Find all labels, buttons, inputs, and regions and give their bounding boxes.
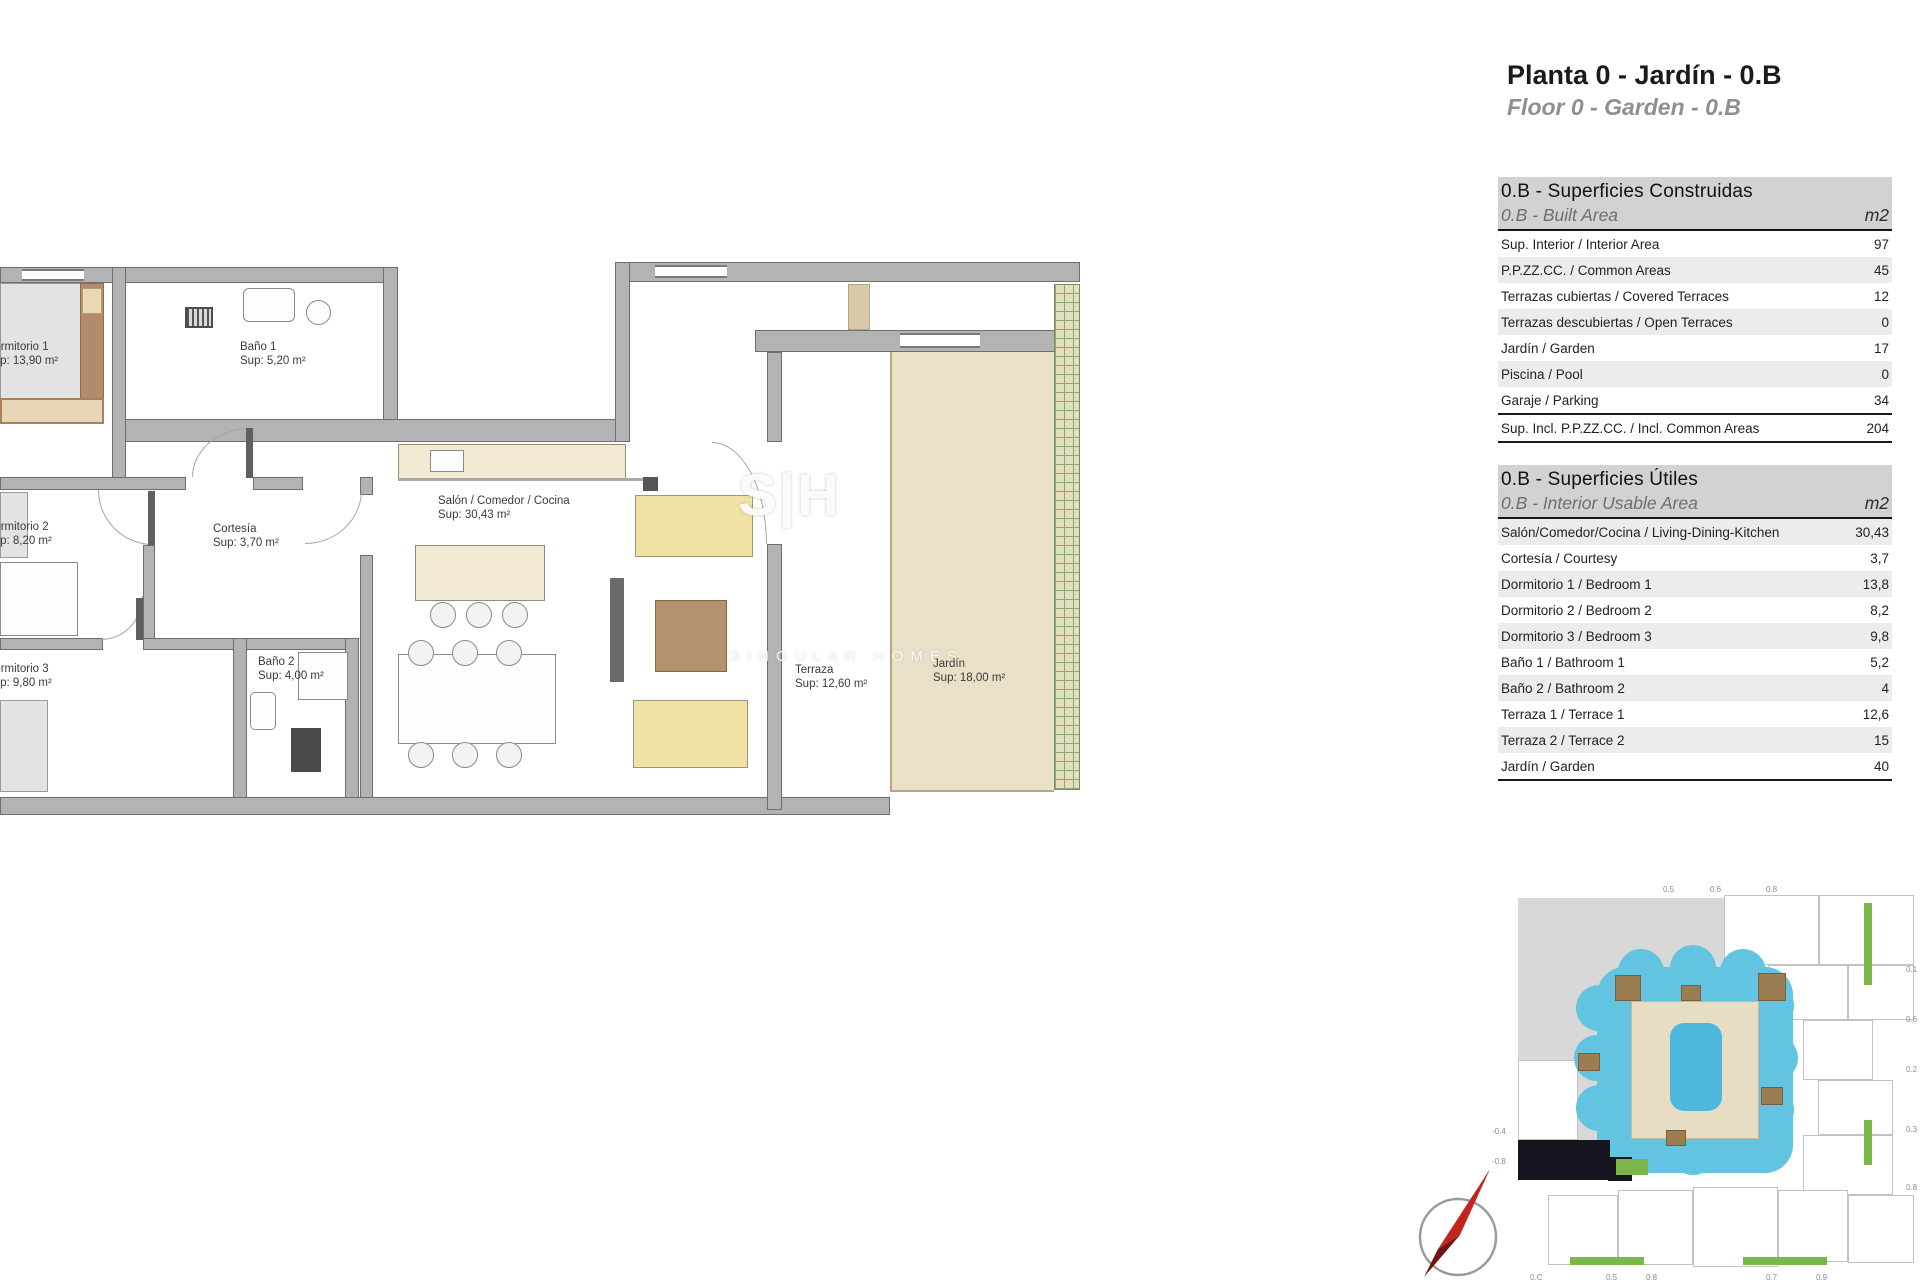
table-row: Terraza 1 / Terrace 112,6 xyxy=(1498,701,1892,727)
bed xyxy=(0,562,78,636)
wall xyxy=(767,352,782,442)
toilet xyxy=(250,692,276,730)
site-label: 0.6 xyxy=(1906,1015,1917,1024)
room-name: Baño 2 xyxy=(258,656,294,668)
pillow xyxy=(82,288,102,314)
site-unit xyxy=(1778,1190,1848,1262)
row-value: 5,2 xyxy=(1870,655,1889,670)
row-value: 30,43 xyxy=(1855,525,1889,540)
page-title: Planta 0 - Jardín - 0.B xyxy=(1507,60,1782,91)
table-row: Salón/Comedor/Cocina / Living-Dining-Kit… xyxy=(1498,519,1892,545)
table-row: Dormitorio 3 / Bedroom 39,8 xyxy=(1498,623,1892,649)
wall xyxy=(112,267,126,480)
row-value: 3,7 xyxy=(1870,551,1889,566)
row-value: 40 xyxy=(1874,759,1889,774)
wall xyxy=(0,797,890,815)
stool xyxy=(430,602,456,628)
table-row: Baño 1 / Bathroom 15,2 xyxy=(1498,649,1892,675)
row-value: 12 xyxy=(1874,289,1889,304)
sofa xyxy=(633,700,748,768)
wall xyxy=(360,555,373,810)
row-value: 4 xyxy=(1881,681,1889,696)
table-title-en: 0.B - Interior Usable Area xyxy=(1501,493,1698,514)
row-value: 12,6 xyxy=(1863,707,1889,722)
landscape-strip xyxy=(1864,1120,1872,1165)
deck-structure xyxy=(1758,973,1786,1001)
row-value: 17 xyxy=(1874,341,1889,356)
table-row: Baño 2 / Bathroom 24 xyxy=(1498,675,1892,701)
room-label-banio1: Baño 1 Sup: 5,20 m² xyxy=(240,340,306,368)
bed-foot-bench xyxy=(0,398,104,424)
landscape-strip xyxy=(1570,1257,1644,1265)
wall xyxy=(253,477,303,490)
door-leaf xyxy=(148,491,155,545)
built-area-table: 0.B - Superficies Construidas 0.B - Buil… xyxy=(1498,177,1892,443)
chair xyxy=(452,742,478,768)
row-label: Baño 1 / Bathroom 1 xyxy=(1501,655,1625,670)
row-value: 0 xyxy=(1881,315,1889,330)
compass xyxy=(1408,1165,1523,1280)
site-unit xyxy=(1618,1190,1693,1265)
table-unit: m2 xyxy=(1865,493,1889,514)
watermark-logo: S|H xyxy=(738,462,841,529)
wall xyxy=(112,419,626,442)
room-label-jardin: Jardín Sup: 18,00 m² xyxy=(933,657,1005,685)
row-label: Dormitorio 2 / Bedroom 2 xyxy=(1501,603,1652,618)
wall xyxy=(233,638,247,810)
room-label-dormitorio2: Dormitorio 2 Sup: 8,20 m² xyxy=(0,520,52,548)
floor-plan: S|H SINGULAR HOMES Dormitorio 1 Sup: 13 xyxy=(0,0,1100,840)
row-label: Sup. Interior / Interior Area xyxy=(1501,237,1659,252)
room-name: Baño 1 xyxy=(240,341,276,353)
wall xyxy=(143,638,359,650)
chair xyxy=(408,640,434,666)
table-row: Jardín / Garden40 xyxy=(1498,753,1892,781)
wall xyxy=(0,638,103,650)
room-area: Sup: 13,90 m² xyxy=(0,355,58,367)
site-label: -0.4 xyxy=(1492,1127,1506,1136)
landscape-strip xyxy=(1743,1257,1827,1265)
garden-hedge-hatch xyxy=(1054,284,1080,790)
window xyxy=(900,333,980,348)
chair xyxy=(496,640,522,666)
room-name: Salón / Comedor / Cocina xyxy=(438,495,570,507)
site-label: 0.C xyxy=(1530,1273,1542,1280)
row-value: 15 xyxy=(1874,733,1889,748)
page-subtitle: Floor 0 - Garden - 0.B xyxy=(1507,94,1782,121)
door-arc xyxy=(98,490,153,545)
site-label: 0.3 xyxy=(1906,1125,1917,1134)
site-label: 0.8 xyxy=(1646,1273,1657,1280)
key-site-plan: 0.5 0.6 0.8 0.1 0.6 0.2 0.3 0.8 -0.4 -0.… xyxy=(1518,895,1918,1280)
door-arc xyxy=(305,490,362,544)
table-row: Cortesía / Courtesy3,7 xyxy=(1498,545,1892,571)
room-label-dormitorio1: Dormitorio 1 Sup: 13,90 m² xyxy=(0,340,58,368)
garden-area xyxy=(890,352,1054,792)
row-label: Salón/Comedor/Cocina / Living-Dining-Kit… xyxy=(1501,525,1779,540)
window xyxy=(22,269,84,281)
coffee-table xyxy=(655,600,727,672)
usable-area-table: 0.B - Superficies Útiles 0.B - Interior … xyxy=(1498,465,1892,781)
row-label: Jardín / Garden xyxy=(1501,341,1595,356)
table-title-en: 0.B - Built Area xyxy=(1501,205,1618,226)
site-label: 0.8 xyxy=(1766,885,1777,894)
table-title-es: 0.B - Superficies Construidas xyxy=(1501,181,1889,203)
site-label: 0.7 xyxy=(1766,1273,1777,1280)
room-area: Sup: 18,00 m² xyxy=(933,672,1005,684)
room-label-salon: Salón / Comedor / Cocina Sup: 30,43 m² xyxy=(438,494,570,522)
floorplan-sheet: { "header": { "title": "Planta 0 - Jardí… xyxy=(0,0,1920,1280)
wall xyxy=(143,545,155,645)
row-label: Terrazas cubiertas / Covered Terraces xyxy=(1501,289,1729,304)
pillar xyxy=(848,284,870,330)
washbasin-unit xyxy=(291,728,321,772)
site-label: 0.8 xyxy=(1906,1183,1917,1192)
room-area: Sup: 30,43 m² xyxy=(438,509,510,521)
table-row: Terraza 2 / Terrace 215 xyxy=(1498,727,1892,753)
room-area: Sup: 12,60 m² xyxy=(795,678,867,690)
chair xyxy=(452,640,478,666)
row-label: Piscina / Pool xyxy=(1501,367,1583,382)
row-value: 13,8 xyxy=(1863,577,1889,592)
site-unit xyxy=(1693,1187,1778,1267)
row-label: Garaje / Parking xyxy=(1501,393,1599,408)
row-label: Terraza 2 / Terrace 2 xyxy=(1501,733,1625,748)
toilet xyxy=(243,288,295,322)
sheet-title-block: Planta 0 - Jardín - 0.B Floor 0 - Garden… xyxy=(1507,60,1782,121)
pool-scallop xyxy=(1576,1085,1622,1131)
table-title-es: 0.B - Superficies Útiles xyxy=(1501,469,1889,491)
door-leaf xyxy=(136,598,143,640)
room-label-banio2: Baño 2 Sup: 4,00 m² xyxy=(258,655,324,683)
site-unit xyxy=(1803,1020,1873,1080)
site-unit xyxy=(1548,1195,1618,1265)
wardrobe xyxy=(0,700,48,792)
tv-sideboard xyxy=(610,578,624,682)
table-row: Garaje / Parking34 xyxy=(1498,387,1892,413)
room-area: Sup: 4,00 m² xyxy=(258,670,324,682)
row-label: Jardín / Garden xyxy=(1501,759,1595,774)
wall xyxy=(767,544,782,810)
deck-structure xyxy=(1578,1053,1600,1071)
room-name: Dormitorio 1 xyxy=(0,341,49,353)
room-name: Terraza xyxy=(795,664,833,676)
site-unit xyxy=(1818,1080,1893,1135)
row-value: 204 xyxy=(1866,421,1889,436)
stool xyxy=(466,602,492,628)
landscape-strip xyxy=(1864,903,1872,985)
table-header: 0.B - Superficies Útiles 0.B - Interior … xyxy=(1498,465,1892,519)
table-row: Dormitorio 2 / Bedroom 28,2 xyxy=(1498,597,1892,623)
room-name: Dormitorio 2 xyxy=(0,521,49,533)
room-area: Sup: 5,20 m² xyxy=(240,355,306,367)
deck-structure xyxy=(1761,1087,1783,1105)
room-area: Sup: 8,20 m² xyxy=(0,535,52,547)
row-value: 9,8 xyxy=(1870,629,1889,644)
row-label: Sup. Incl. P.P.ZZ.CC. / Incl. Common Are… xyxy=(1501,421,1759,436)
wall xyxy=(0,477,186,490)
column-post xyxy=(643,477,658,491)
row-label: P.P.ZZ.CC. / Common Areas xyxy=(1501,263,1671,278)
row-label: Baño 2 / Bathroom 2 xyxy=(1501,681,1625,696)
row-label: Dormitorio 1 / Bedroom 1 xyxy=(1501,577,1652,592)
room-name: Cortesía xyxy=(213,523,256,535)
room-label-dormitorio3: Dormitorio 3 Sup: 9,80 m² xyxy=(0,662,52,690)
site-label: 0.1 xyxy=(1906,965,1917,974)
table-row: Sup. Interior / Interior Area97 xyxy=(1498,231,1892,257)
room-area: Sup: 3,70 m² xyxy=(213,537,279,549)
row-value: 0 xyxy=(1881,367,1889,382)
deck-structure xyxy=(1615,975,1641,1001)
row-value: 97 xyxy=(1874,237,1889,252)
kitchen-sink xyxy=(430,450,464,472)
kitchen-island xyxy=(415,545,545,601)
room-name: Dormitorio 3 xyxy=(0,663,49,675)
site-label: 0.6 xyxy=(1710,885,1721,894)
row-value: 34 xyxy=(1874,393,1889,408)
site-unit xyxy=(1518,1060,1578,1140)
site-label: 0.5 xyxy=(1606,1273,1617,1280)
landscape-strip xyxy=(1616,1159,1648,1175)
room-name: Jardín xyxy=(933,658,965,670)
dining-table xyxy=(398,654,556,744)
chair xyxy=(496,742,522,768)
table-row: P.P.ZZ.CC. / Common Areas45 xyxy=(1498,257,1892,283)
table-row: Piscina / Pool0 xyxy=(1498,361,1892,387)
row-label: Dormitorio 3 / Bedroom 3 xyxy=(1501,629,1652,644)
table-header: 0.B - Superficies Construidas 0.B - Buil… xyxy=(1498,177,1892,231)
row-label: Cortesía / Courtesy xyxy=(1501,551,1617,566)
deck-structure xyxy=(1681,985,1701,1001)
counter-edge xyxy=(398,478,646,481)
table-unit: m2 xyxy=(1865,205,1889,226)
deck-structure xyxy=(1666,1130,1686,1146)
site-label: 0.5 xyxy=(1663,885,1674,894)
door-leaf xyxy=(246,428,253,478)
chair xyxy=(408,742,434,768)
window xyxy=(655,265,727,278)
table-row: Terrazas descubiertas / Open Terraces0 xyxy=(1498,309,1892,335)
central-pool xyxy=(1670,1023,1722,1111)
table-row: Jardín / Garden17 xyxy=(1498,335,1892,361)
site-unit xyxy=(1848,965,1914,1020)
row-label: Terrazas descubiertas / Open Terraces xyxy=(1501,315,1733,330)
wall xyxy=(615,262,630,442)
table-row: Terrazas cubiertas / Covered Terraces12 xyxy=(1498,283,1892,309)
site-unit xyxy=(1803,1135,1893,1195)
north-arrow-icon xyxy=(1408,1165,1523,1280)
row-label: Terraza 1 / Terrace 1 xyxy=(1501,707,1625,722)
room-area: Sup: 9,80 m² xyxy=(0,677,52,689)
site-unit xyxy=(1848,1195,1914,1263)
wall xyxy=(383,267,398,437)
stool xyxy=(502,602,528,628)
row-value: 8,2 xyxy=(1870,603,1889,618)
sink xyxy=(306,300,331,325)
room-label-terraza: Terraza Sup: 12,60 m² xyxy=(795,663,867,691)
table-row: Dormitorio 1 / Bedroom 113,8 xyxy=(1498,571,1892,597)
site-label: 0.2 xyxy=(1906,1065,1917,1074)
vent-icon xyxy=(185,307,213,328)
room-label-cortesia: Cortesía Sup: 3,70 m² xyxy=(213,522,279,550)
table-row-total: Sup. Incl. P.P.ZZ.CC. / Incl. Common Are… xyxy=(1498,413,1892,443)
row-value: 45 xyxy=(1874,263,1889,278)
site-label: 0.9 xyxy=(1816,1273,1827,1280)
sofa xyxy=(635,495,753,557)
unit-highlight-0b xyxy=(1518,1140,1610,1180)
